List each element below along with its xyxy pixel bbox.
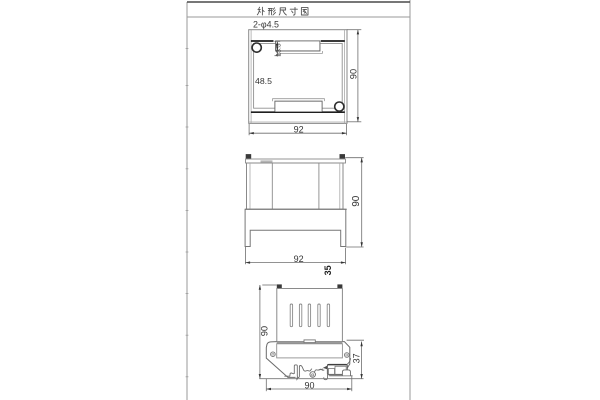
svg-text:90: 90: [305, 381, 315, 391]
svg-text:35: 35: [323, 265, 333, 275]
svg-text:37: 37: [352, 353, 362, 363]
svg-text:90: 90: [349, 69, 359, 79]
svg-text:2-φ4.5: 2-φ4.5: [253, 19, 279, 29]
svg-text:92: 92: [294, 125, 304, 135]
svg-text:90: 90: [351, 195, 362, 207]
svg-text:92: 92: [294, 254, 304, 264]
svg-text:13.5: 13.5: [275, 43, 282, 56]
svg-text:48.5: 48.5: [255, 76, 272, 86]
svg-text:90: 90: [259, 326, 270, 336]
